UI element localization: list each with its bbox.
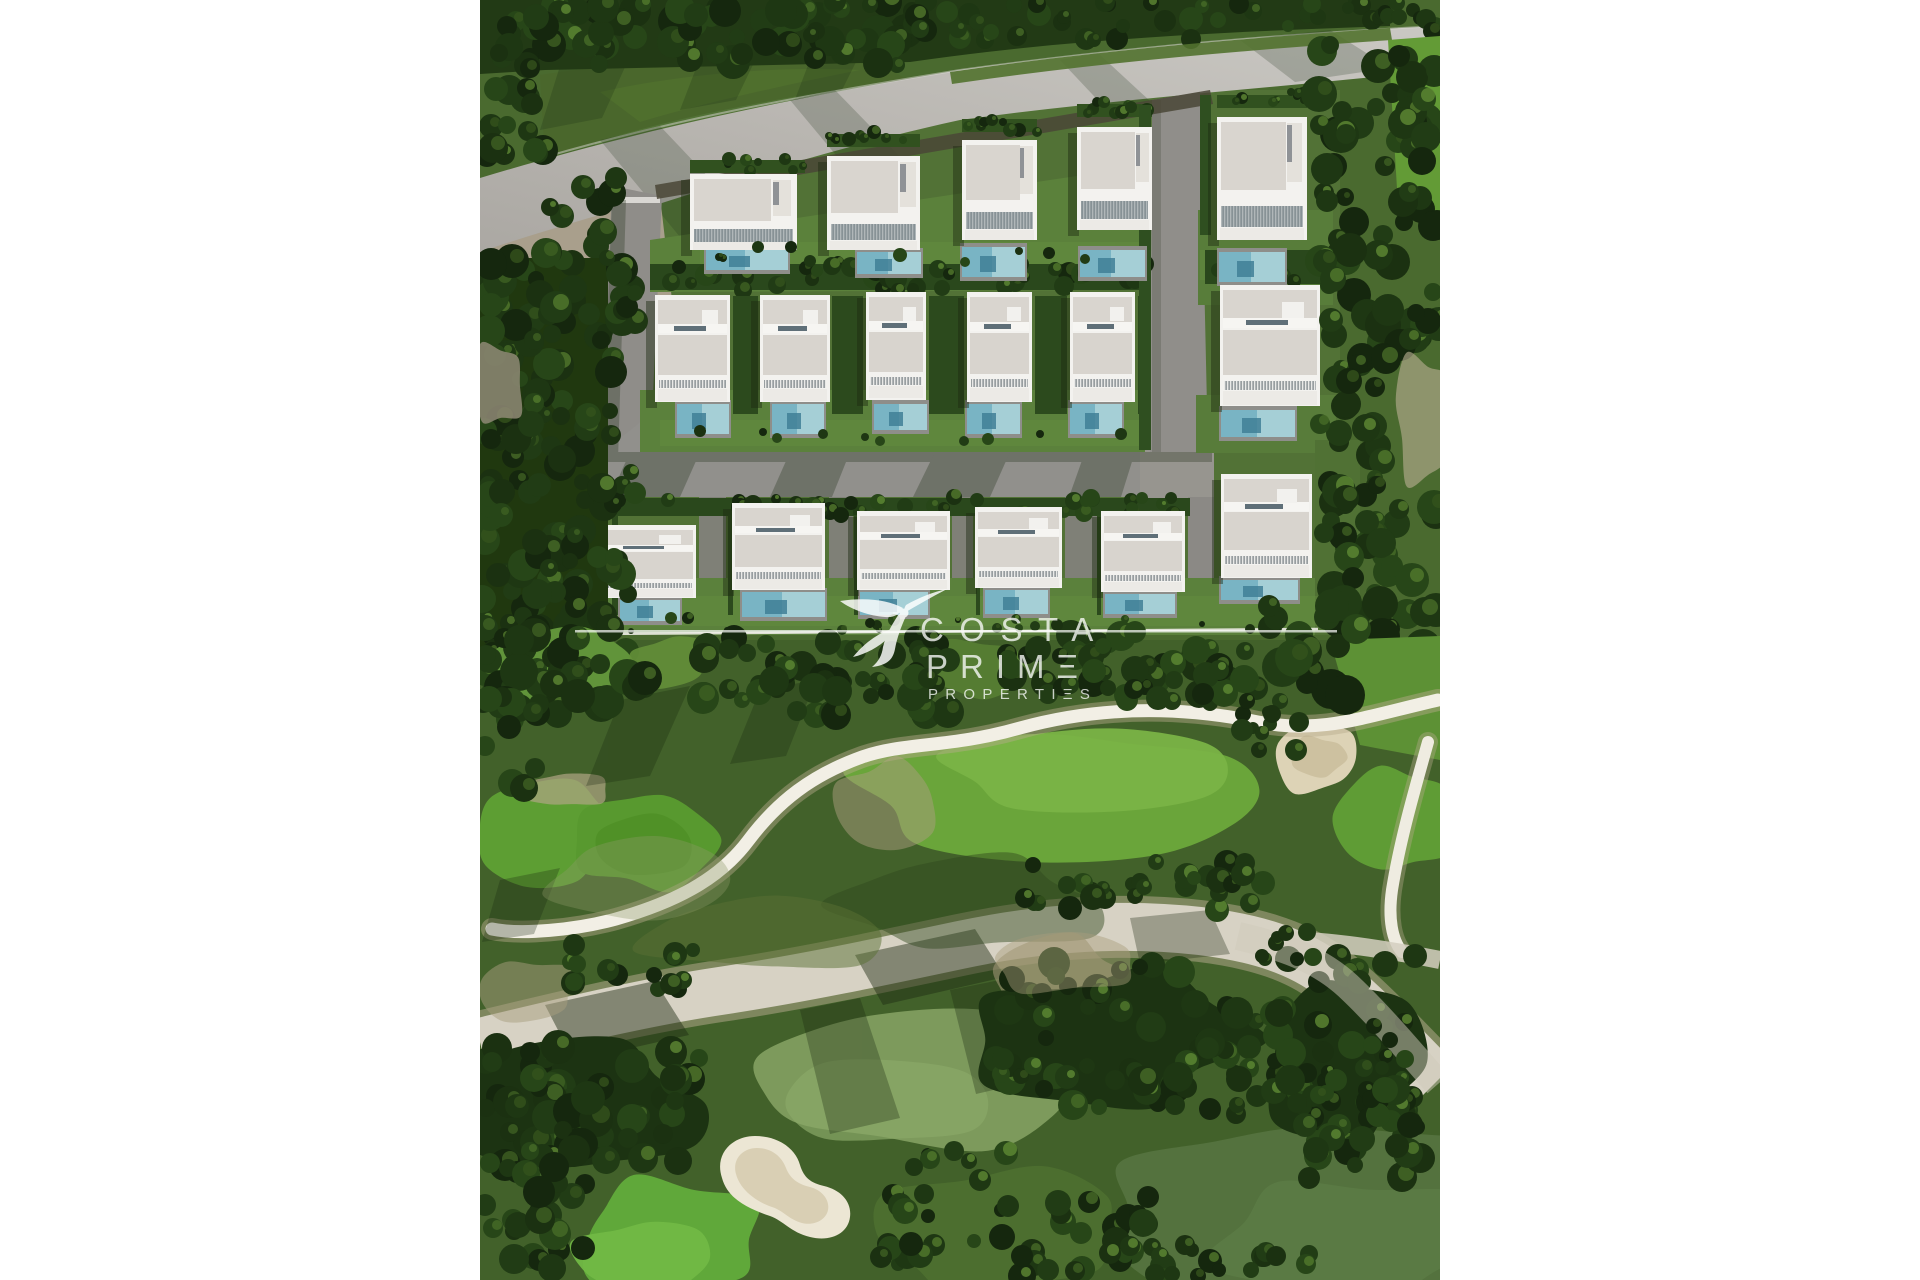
svg-text:PROPERTIΞS: PROPERTIΞS [928, 686, 1097, 703]
svg-text:COSTA: COSTA [920, 611, 1109, 648]
svg-text:PRIMΞ: PRIMΞ [926, 648, 1090, 685]
